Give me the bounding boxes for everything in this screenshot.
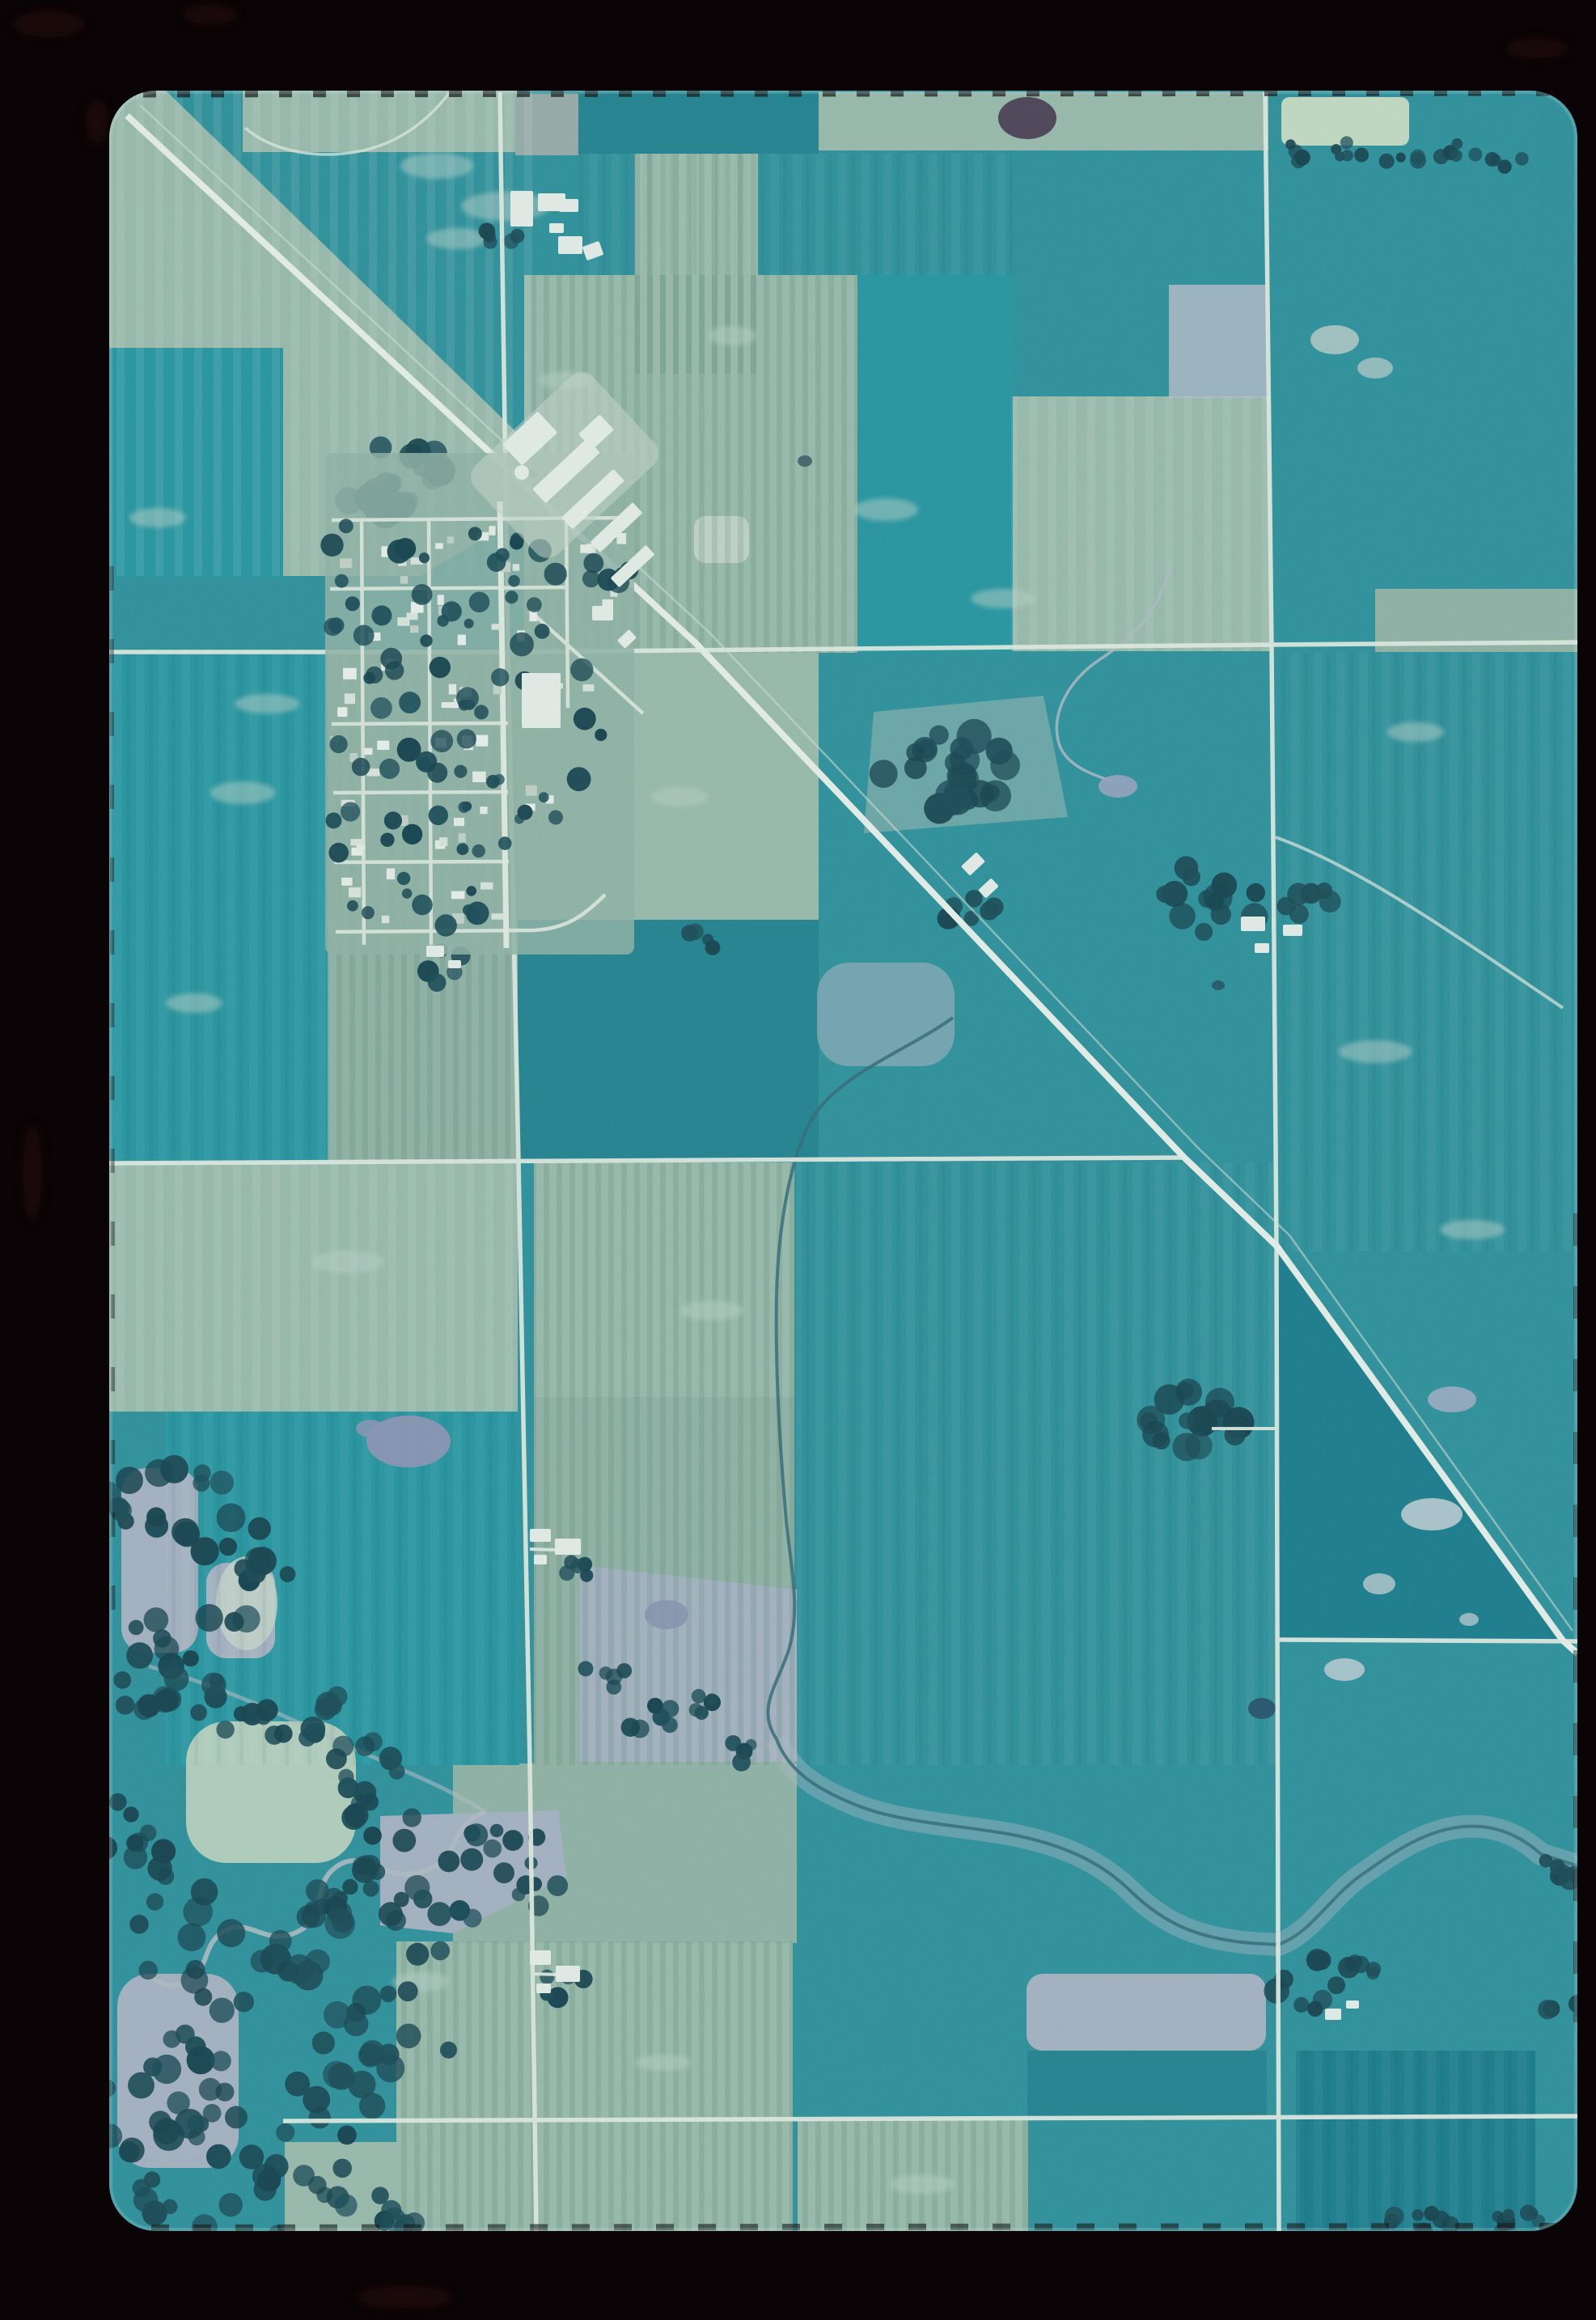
aerial-photo-slide (0, 0, 1596, 2320)
film-grain-dark (109, 91, 1577, 2231)
slide-scan: Color film slide of a vertical aerial ph… (0, 0, 1596, 2320)
